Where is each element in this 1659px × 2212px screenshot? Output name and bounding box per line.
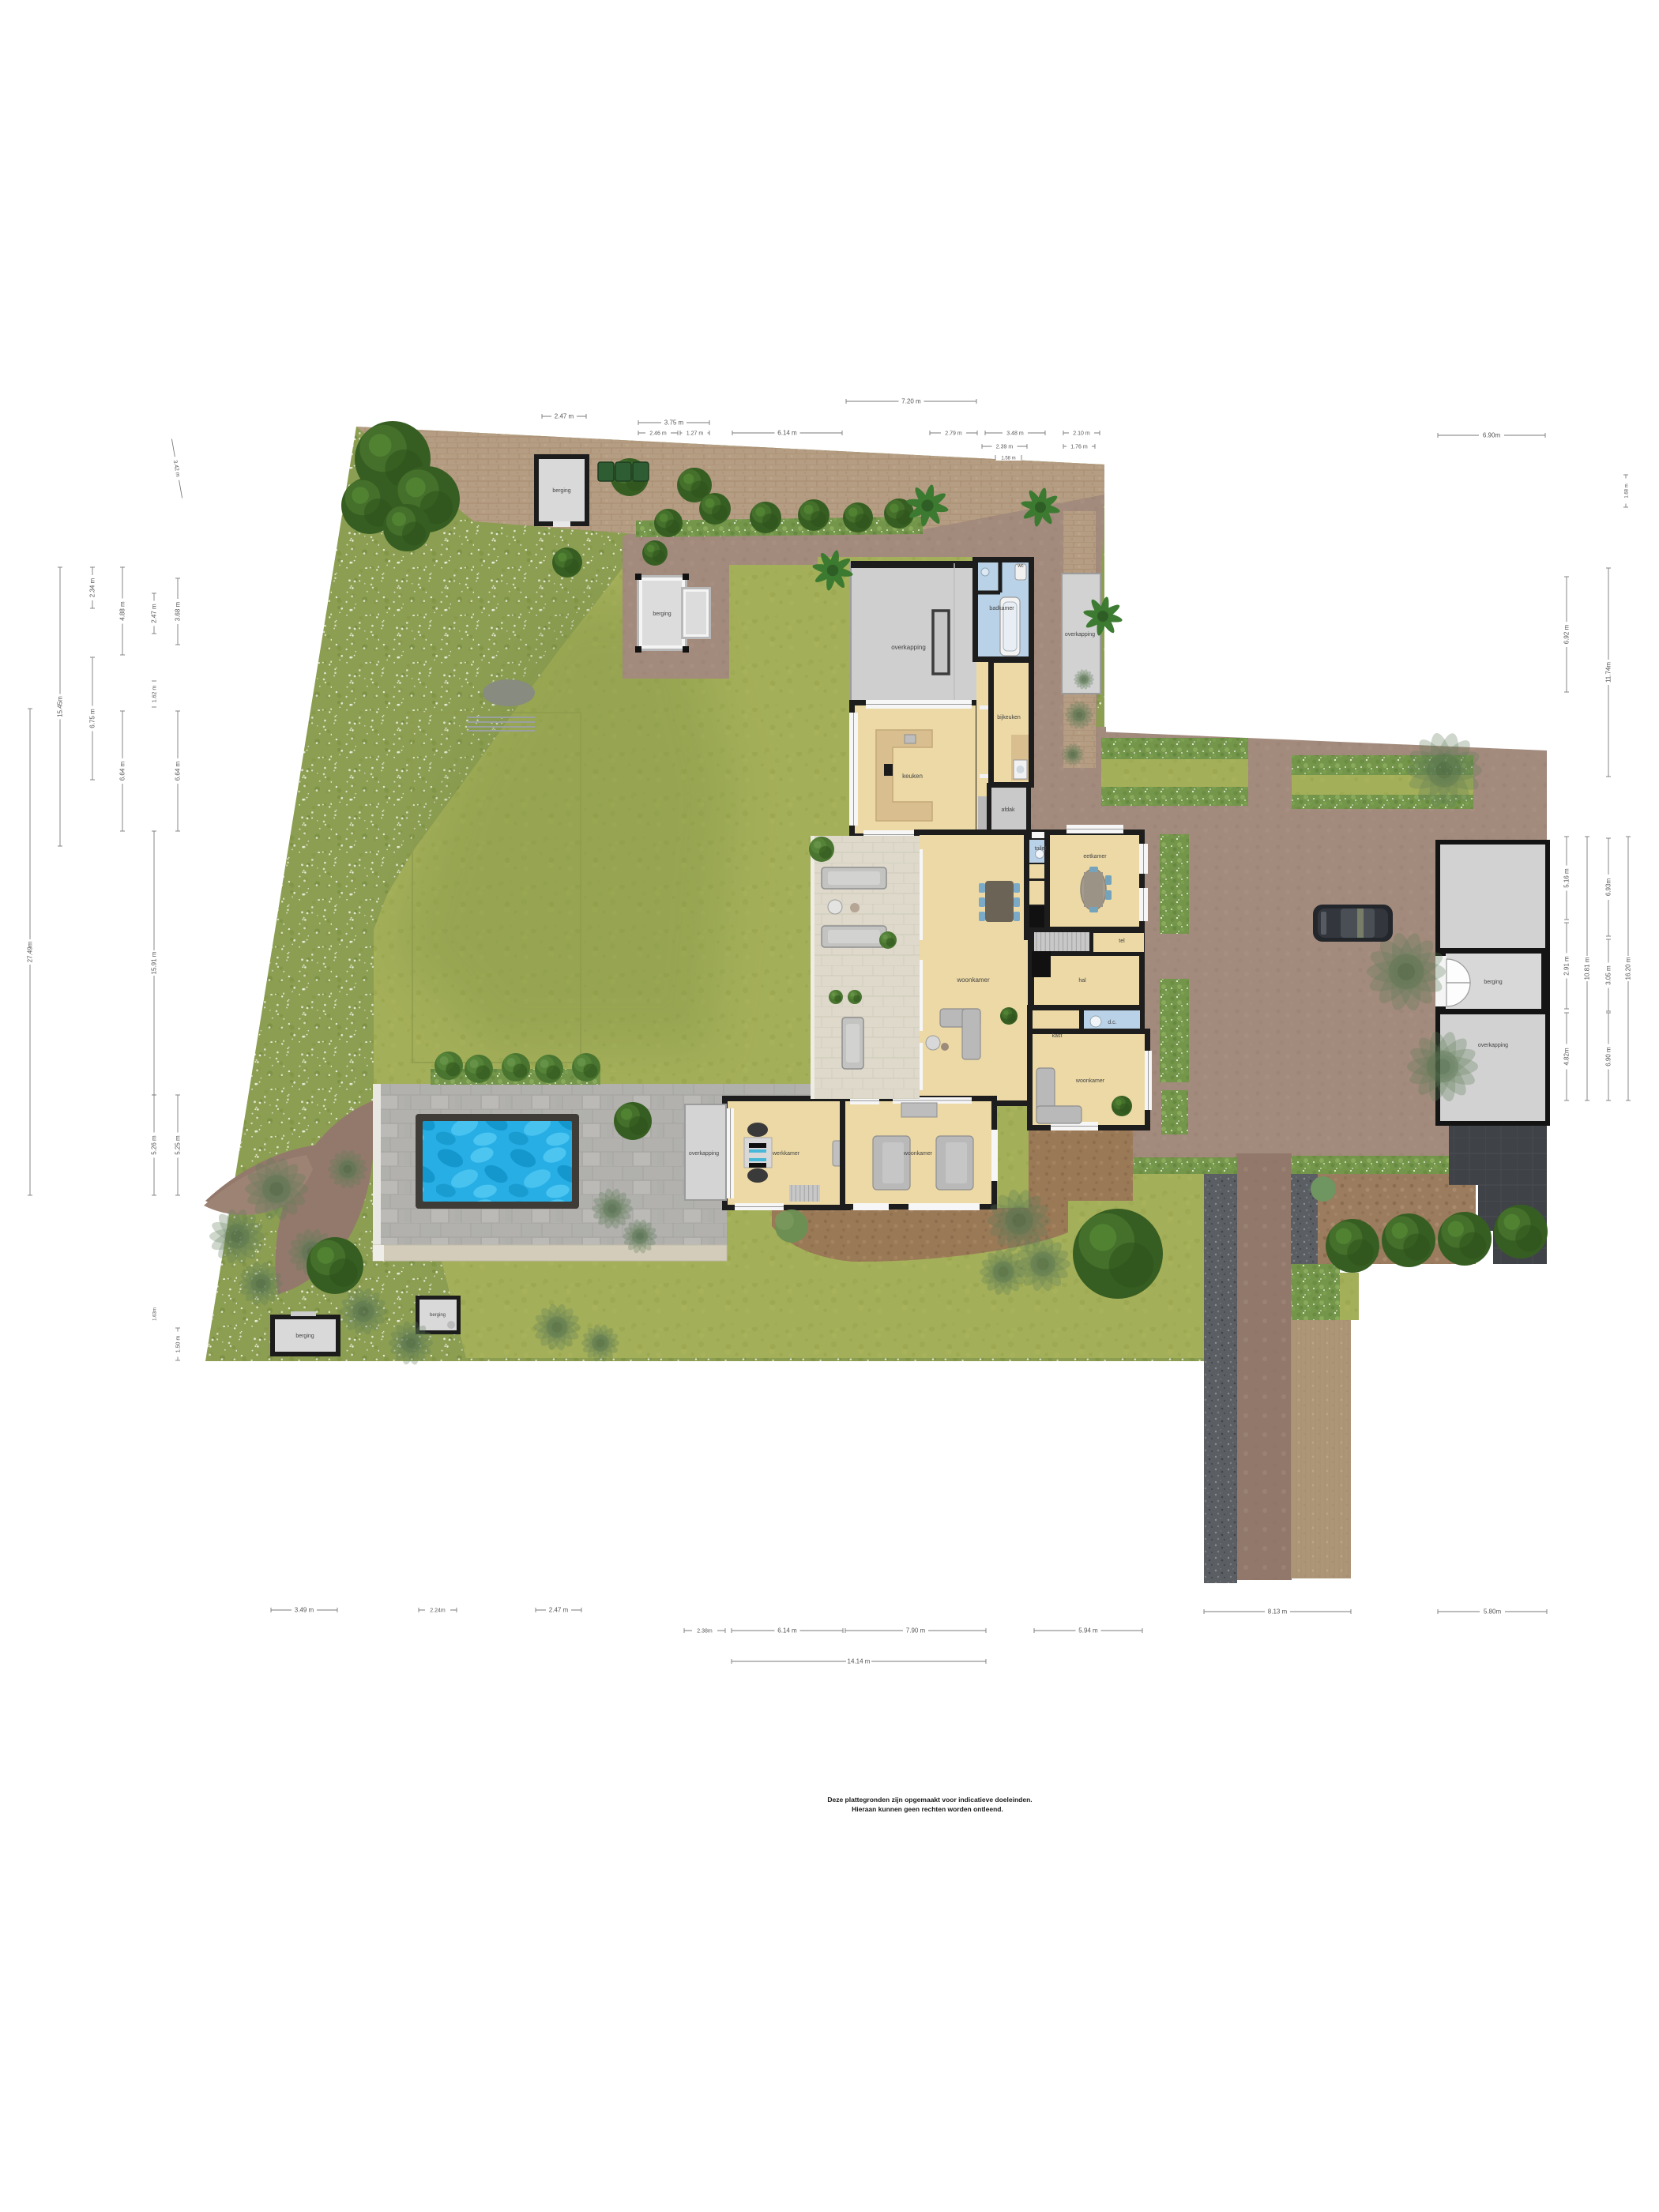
svg-text:eetkamer: eetkamer (1083, 854, 1107, 860)
svg-text:afdak: afdak (1001, 807, 1015, 813)
svg-text:10.81 m: 10.81 m (1584, 957, 1591, 980)
svg-text:overkapping: overkapping (689, 1151, 719, 1157)
svg-text:overkapping: overkapping (1478, 1043, 1508, 1048)
svg-text:berging: berging (295, 1334, 314, 1339)
svg-text:5.26 m: 5.26 m (151, 1135, 158, 1155)
svg-text:2.47 m: 2.47 m (555, 413, 574, 420)
svg-text:berging: berging (430, 1313, 446, 1318)
svg-text:4.82m: 4.82m (1563, 1048, 1571, 1066)
svg-text:1.27 m: 1.27 m (687, 431, 704, 437)
svg-text:toilet: toilet (1035, 846, 1047, 852)
svg-text:1.62 m: 1.62 m (152, 686, 158, 703)
svg-text:d.c.: d.c. (1108, 1020, 1116, 1025)
svg-text:6.14 m: 6.14 m (777, 430, 797, 437)
svg-text:2.39 m: 2.39 m (996, 445, 1014, 450)
svg-text:15.45m: 15.45m (57, 696, 64, 717)
svg-text:3.48 m: 3.48 m (1006, 431, 1024, 437)
svg-text:3.05 m: 3.05 m (1605, 965, 1612, 985)
svg-text:hal: hal (1078, 978, 1086, 984)
svg-text:woonkamer: woonkamer (956, 976, 990, 984)
svg-text:berging: berging (1484, 980, 1502, 985)
svg-text:7.90 m: 7.90 m (906, 1627, 926, 1635)
svg-text:overkapping: overkapping (1065, 632, 1095, 638)
svg-text:1.50 m: 1.50 m (176, 1336, 182, 1353)
svg-text:3.68 m: 3.68 m (175, 601, 182, 621)
svg-text:2.46 m: 2.46 m (649, 431, 667, 437)
svg-text:2.79 m: 2.79 m (945, 431, 962, 437)
svg-text:overkapping: overkapping (891, 644, 926, 651)
svg-text:wc: wc (1017, 564, 1023, 569)
svg-text:6.64 m: 6.64 m (119, 761, 126, 781)
svg-text:woonkamer: woonkamer (903, 1151, 933, 1157)
svg-text:2.38m: 2.38m (697, 1629, 713, 1635)
svg-text:15.91 m: 15.91 m (151, 951, 158, 974)
svg-text:8.13 m: 8.13 m (1268, 1608, 1288, 1616)
svg-text:2.91 m: 2.91 m (1563, 956, 1571, 976)
svg-text:Deze plattegronden zijn opgema: Deze plattegronden zijn opgemaakt voor i… (827, 1796, 1032, 1804)
svg-text:badkamer: badkamer (989, 606, 1014, 611)
svg-text:6.92 m: 6.92 m (1563, 624, 1571, 644)
svg-text:6.64 m: 6.64 m (175, 761, 182, 781)
svg-text:6.93m: 6.93m (1605, 878, 1612, 897)
svg-text:Hieraan kunnen geen rechten wo: Hieraan kunnen geen rechten worden ontle… (852, 1805, 1003, 1813)
svg-text:6.14 m: 6.14 m (777, 1627, 797, 1635)
svg-text:7.20 m: 7.20 m (901, 398, 921, 405)
svg-text:3.49 m: 3.49 m (295, 1607, 314, 1614)
svg-text:berging: berging (552, 488, 570, 494)
svg-text:11.74m: 11.74m (1605, 662, 1612, 683)
svg-text:6.90m: 6.90m (1483, 432, 1501, 439)
svg-text:woonkamer: woonkamer (1075, 1078, 1105, 1084)
svg-text:3.75 m: 3.75 m (664, 419, 684, 427)
svg-text:2.34 m: 2.34 m (89, 577, 96, 597)
svg-text:27.49m: 27.49m (27, 941, 34, 962)
svg-text:keuken: keuken (902, 773, 923, 780)
svg-text:1.76 m: 1.76 m (1070, 445, 1088, 450)
svg-text:bijkeuken: bijkeuken (997, 715, 1021, 720)
svg-text:tel: tel (1119, 939, 1125, 944)
svg-text:4.88 m: 4.88 m (119, 601, 126, 621)
svg-text:2.47 m: 2.47 m (151, 604, 158, 623)
svg-text:5.16 m: 5.16 m (1563, 868, 1571, 888)
svg-text:2.24m: 2.24m (430, 1608, 446, 1614)
svg-text:berging: berging (653, 611, 671, 617)
svg-text:1.58 m: 1.58 m (1001, 457, 1015, 461)
svg-text:16.20 m: 16.20 m (1625, 957, 1632, 980)
svg-text:5.25 m: 5.25 m (175, 1135, 182, 1155)
svg-text:5.94 m: 5.94 m (1078, 1627, 1098, 1635)
svg-text:6.90 m: 6.90 m (1605, 1047, 1612, 1066)
svg-text:14.14 m: 14.14 m (848, 1658, 871, 1665)
svg-text:5.80m: 5.80m (1484, 1608, 1502, 1616)
svg-text:2.47 m: 2.47 m (549, 1607, 569, 1614)
svg-text:1.68 m: 1.68 m (1625, 483, 1630, 498)
svg-text:2.10 m: 2.10 m (1073, 431, 1090, 437)
svg-text:1.63m: 1.63m (153, 1307, 158, 1321)
svg-text:werkkamer: werkkamer (772, 1151, 800, 1157)
svg-text:kast: kast (1052, 1033, 1063, 1039)
svg-text:6.75 m: 6.75 m (89, 709, 96, 728)
